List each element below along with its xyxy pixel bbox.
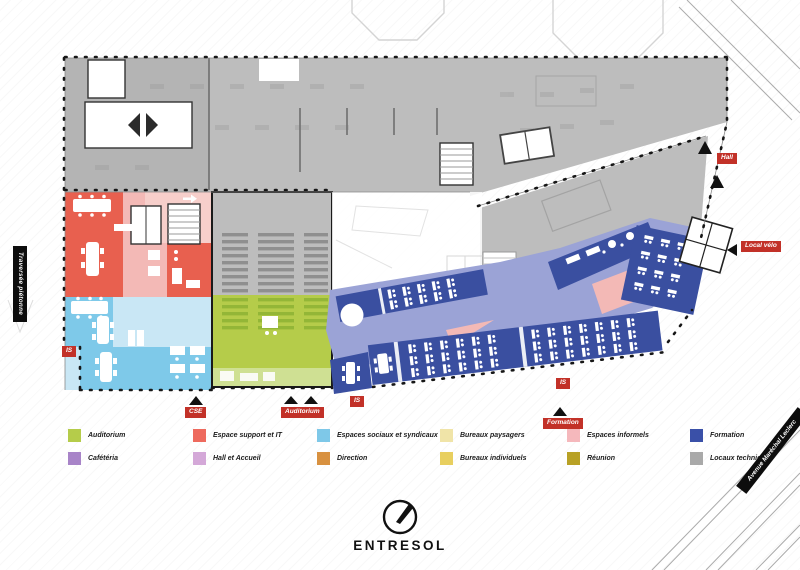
room-top-left [88, 60, 125, 98]
label-auditorium: Auditorium [281, 407, 324, 418]
legend-label: Réunion [587, 455, 615, 462]
north-compass-icon [384, 501, 416, 533]
legend-label: Espace support et IT [213, 432, 282, 439]
slab-opening [259, 59, 299, 81]
legend-swatch [690, 452, 703, 465]
legend-column: AuditoriumCafétéria [68, 428, 125, 474]
legend-label: Espaces informels [587, 432, 649, 439]
legend-swatch [193, 429, 206, 442]
legend-item: Espaces sociaux et syndicaux [317, 428, 438, 442]
legend-label: Formation [710, 432, 744, 439]
legend-label: Espaces sociaux et syndicaux [337, 432, 438, 439]
legend-column: Espaces sociaux et syndicauxDirection [317, 428, 438, 474]
legend-item: Espaces informels [567, 428, 649, 442]
legend-label: Hall et Accueil [213, 455, 261, 462]
legend-item: Espace support et IT [193, 428, 282, 442]
legend-column: Espaces informelsRéunion [567, 428, 649, 474]
legend-item: Formation [690, 428, 773, 442]
legend-swatch [68, 429, 81, 442]
legend-swatch [68, 452, 81, 465]
legend-column: Bureaux paysagersBureaux individuels [440, 428, 527, 474]
legend-item: Bureaux individuels [440, 451, 527, 465]
legend: AuditoriumCafétériaEspace support et ITH… [0, 428, 800, 478]
legend-swatch [567, 452, 580, 465]
escalator-core [85, 102, 192, 148]
arrow-hall2-icon [710, 175, 724, 188]
zone-auditorium [212, 192, 332, 387]
arrow-auditorium-icon [284, 396, 298, 404]
legend-item: Réunion [567, 451, 649, 465]
legend-item: Auditorium [68, 428, 125, 442]
floor-plan-drawing [0, 0, 800, 570]
legend-item: Cafétéria [68, 451, 125, 465]
label-local-velo: Local vélo [741, 241, 781, 252]
legend-column: Espace support et ITHall et Accueil [193, 428, 282, 474]
street-banner-traversee: Traversée piétonne [13, 246, 27, 322]
label-is-right: IS [556, 378, 570, 389]
arrow-auditorium2-icon [304, 396, 318, 404]
stair-core-upper [440, 143, 473, 185]
legend-item: Hall et Accueil [193, 451, 282, 465]
legend-swatch [440, 452, 453, 465]
legend-label: Auditorium [88, 432, 125, 439]
atrium-round-void [341, 304, 364, 327]
legend-item: Direction [317, 451, 438, 465]
page-title: ENTRESOL [330, 538, 470, 553]
arrow-formation-icon [553, 407, 567, 416]
legend-label: Bureaux paysagers [460, 432, 525, 439]
legend-label: Cafétéria [88, 455, 118, 462]
legend-swatch [567, 429, 580, 442]
legend-swatch [690, 429, 703, 442]
label-is-left: IS [62, 346, 76, 357]
label-cse: CSE [185, 407, 206, 418]
arrow-cse-icon [189, 396, 203, 405]
label-is-bottom: IS [350, 396, 364, 407]
arrow-local-velo-icon [727, 244, 737, 256]
legend-item: Bureaux paysagers [440, 428, 527, 442]
legend-swatch [193, 452, 206, 465]
legend-swatch [440, 429, 453, 442]
label-formation: Formation [543, 418, 583, 429]
legend-swatch [317, 452, 330, 465]
site-trees [352, 0, 663, 65]
floor-plan-page: Traversée piétonne Avenue Maréchal Lecle… [0, 0, 800, 570]
label-hall: Hall [717, 153, 737, 164]
stair-core-left [168, 204, 200, 244]
legend-swatch [317, 429, 330, 442]
legend-label: Bureaux individuels [460, 455, 527, 462]
legend-label: Direction [337, 455, 367, 462]
